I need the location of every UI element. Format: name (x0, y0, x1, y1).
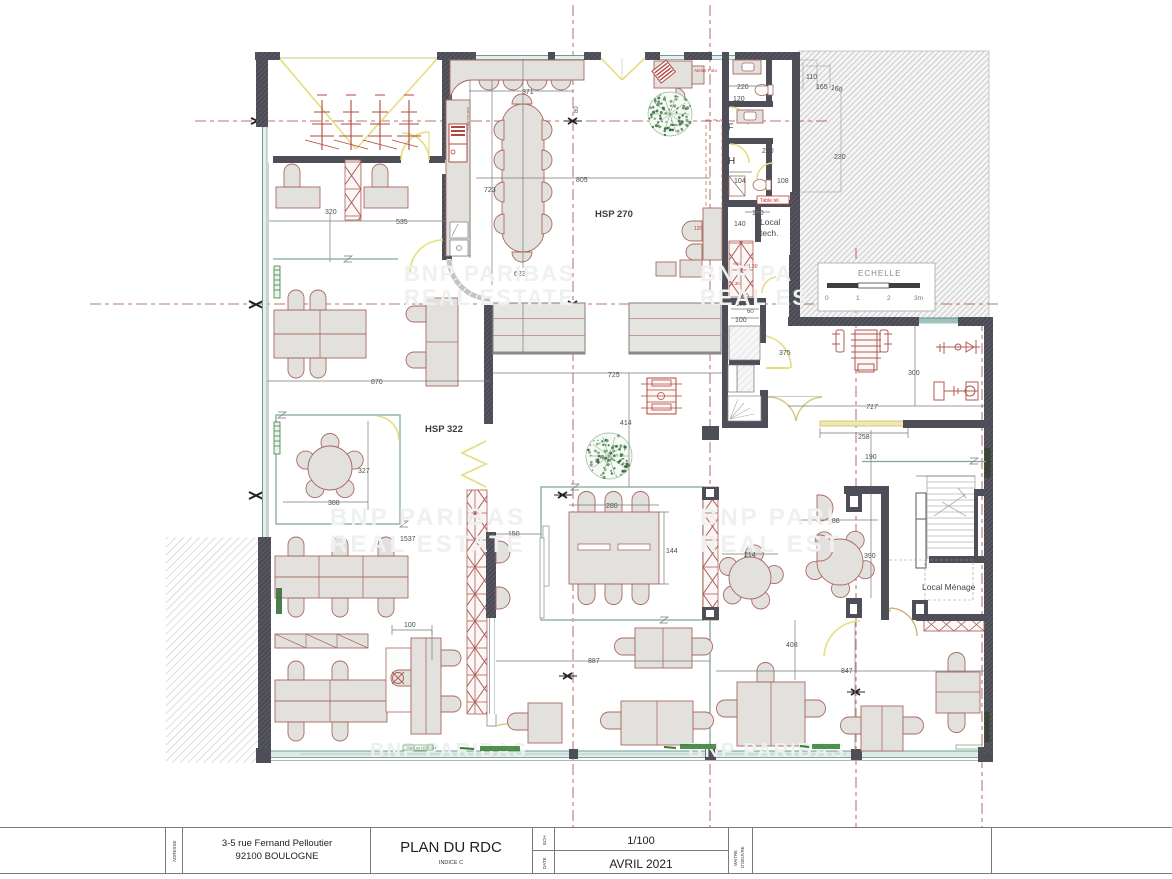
svg-text:390: 390 (864, 553, 876, 560)
svg-text:Local: Local (760, 217, 780, 227)
svg-text:847: 847 (841, 668, 853, 675)
svg-text:SAS xx HSP Ch: SAS xx HSP Ch (407, 745, 436, 750)
svg-text:REAL EST: REAL EST (700, 531, 842, 558)
svg-text:BNP PARIBAS: BNP PARIBAS (330, 504, 526, 531)
svg-text:0: 0 (825, 295, 829, 302)
svg-text:PLAN DU RDC: PLAN DU RDC (400, 839, 502, 856)
svg-text:144: 144 (666, 548, 678, 555)
svg-text:230: 230 (834, 154, 846, 161)
svg-text:230: 230 (762, 148, 774, 155)
svg-text:723: 723 (484, 187, 496, 194)
svg-text:165: 165 (816, 84, 828, 91)
svg-text:320: 320 (325, 209, 337, 216)
svg-text:Table tél.: Table tél. (760, 198, 780, 204)
svg-text:Atelier Foto: Atelier Foto (694, 68, 718, 73)
svg-text:80: 80 (574, 106, 580, 113)
svg-text:HSP 322: HSP 322 (425, 424, 463, 435)
svg-text:ADRESSE: ADRESSE (172, 840, 177, 862)
svg-text:258: 258 (858, 434, 870, 441)
svg-text:110: 110 (806, 74, 817, 81)
svg-text:BNP PARI: BNP PARI (700, 504, 836, 531)
svg-text:REAL ESTATE: REAL ESTATE (330, 531, 526, 558)
svg-text:92100 BOULOGNE: 92100 BOULOGNE (236, 851, 319, 862)
svg-text:408: 408 (786, 642, 798, 649)
svg-text:220: 220 (737, 84, 749, 91)
svg-text:REAL ES: REAL ES (700, 285, 809, 310)
svg-text:BNP PARIBAS: BNP PARIBAS (688, 740, 846, 762)
svg-text:AVRIL 2021: AVRIL 2021 (609, 857, 673, 871)
svg-text:108: 108 (777, 178, 789, 185)
svg-text:375: 375 (779, 350, 791, 357)
svg-text:tech.: tech. (760, 228, 778, 238)
svg-text:H: H (728, 156, 735, 167)
svg-text:INDICE C: INDICE C (439, 860, 463, 866)
svg-text:104: 104 (734, 178, 746, 185)
svg-text:371: 371 (522, 89, 534, 96)
svg-text:Local Ménage: Local Ménage (922, 582, 976, 592)
svg-text:120: 120 (733, 96, 745, 103)
svg-text:140: 140 (734, 221, 746, 228)
svg-text:414: 414 (620, 420, 632, 427)
svg-text:HSP 270: HSP 270 (595, 209, 633, 220)
svg-text:717: 717 (866, 404, 879, 411)
svg-text:1: 1 (856, 295, 860, 302)
svg-text:BNP PA: BNP PA (700, 261, 793, 286)
svg-text:ECHELLE: ECHELLE (858, 269, 901, 278)
svg-text:1/100: 1/100 (627, 835, 655, 847)
svg-text:100: 100 (404, 622, 416, 629)
svg-text:MAITRE: MAITRE (733, 850, 738, 866)
svg-text:120: 120 (694, 226, 703, 232)
svg-text:180: 180 (752, 210, 764, 217)
svg-text:870: 870 (371, 379, 383, 386)
svg-text:280: 280 (606, 503, 618, 510)
svg-text:3-5 rue Fernand Pelloutier: 3-5 rue Fernand Pelloutier (222, 838, 332, 849)
svg-text:REAL ESTATE: REAL ESTATE (404, 285, 575, 310)
svg-text:F: F (728, 122, 734, 132)
svg-text:D'OEUVRE: D'OEUVRE (740, 846, 745, 868)
svg-text:ECH: ECH (542, 835, 547, 845)
svg-text:887: 887 (588, 658, 600, 665)
svg-text:BNP PARIBAS: BNP PARIBAS (404, 261, 576, 286)
svg-text:3m: 3m (914, 295, 923, 302)
svg-text:535: 535 (396, 219, 408, 226)
svg-text:2: 2 (887, 295, 891, 302)
svg-text:300: 300 (908, 370, 920, 377)
svg-text:DATE: DATE (542, 857, 547, 869)
